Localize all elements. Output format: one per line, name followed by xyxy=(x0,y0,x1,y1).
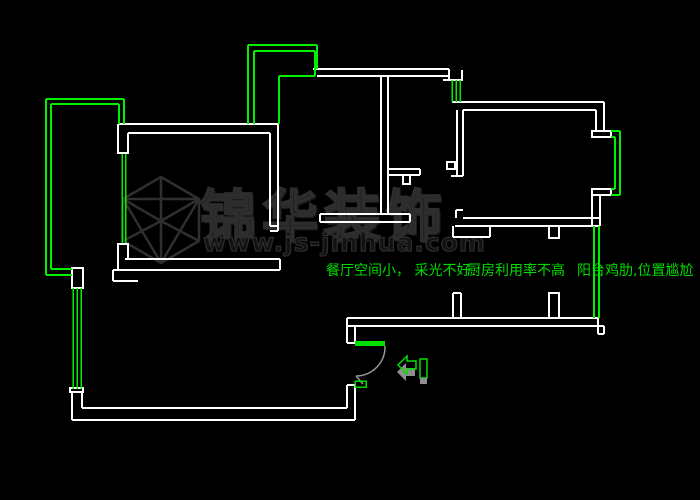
bedroom1-bottom-wall xyxy=(113,259,280,281)
livingroom-left-window xyxy=(73,288,81,389)
bedroom2-left-wall xyxy=(451,110,463,176)
bay-window-bottom-jamb xyxy=(592,189,611,195)
floor-plan-drawing xyxy=(0,0,700,500)
arrow-bar-shadow xyxy=(420,378,427,384)
entry-direction-arrow-icon xyxy=(397,356,427,384)
arrow-bar xyxy=(420,359,427,378)
top-window-triple xyxy=(452,80,460,102)
left-balcony-window xyxy=(46,99,124,275)
top-balcony-window xyxy=(248,45,317,124)
entry-wall-upper xyxy=(347,318,355,343)
dining-kitchen-divider-wall xyxy=(381,76,388,214)
walls-group xyxy=(70,69,611,420)
entry-wall-lower xyxy=(347,385,355,420)
bedroom1-left-wall-lower xyxy=(117,243,129,270)
annotation-dining: 餐厅空间小， 采光不好 xyxy=(326,263,470,279)
door-swing-arc xyxy=(356,346,385,384)
kitchen-balcony-door-jamb-top xyxy=(549,226,559,238)
bedroom2-top-wall xyxy=(452,102,604,131)
annotation-kitchen: 厨房利用率不高 xyxy=(467,263,565,279)
bedroom1-left-window xyxy=(122,154,126,243)
bedroom2-left-wall-corner xyxy=(456,210,463,218)
livingroom-bottom-wall xyxy=(72,391,355,420)
kitchen-left-wall-lower xyxy=(453,293,461,318)
bedroom1-door-jamb xyxy=(272,259,280,270)
entry-door-leaf xyxy=(355,341,385,346)
kitchen-top-ledge xyxy=(453,226,490,237)
thin-window-lines-group xyxy=(73,80,460,389)
entry-door-group xyxy=(355,341,385,387)
kitchen-door-jamb-stub xyxy=(403,175,410,184)
cad-floorplan-canvas: 锦华装饰 www.js-jinhua.com xyxy=(0,0,700,500)
bay-window-top-jamb xyxy=(592,131,611,137)
right-bay-window xyxy=(611,131,620,195)
bedroom1-right-wall xyxy=(270,124,278,231)
bedroom2-door-jamb-block xyxy=(447,162,455,169)
bedroom1-top-wall xyxy=(118,124,278,133)
annotation-balcony: 阳台鸡肋,位置尴尬 xyxy=(577,263,693,279)
livingroom-window-sill-upper xyxy=(72,268,83,288)
bedroom2-right-wall-lower xyxy=(592,195,600,226)
bedroom1-left-wall-upper xyxy=(117,124,129,154)
bedroom2-bottom-wall xyxy=(455,218,600,226)
dining-bottom-wall xyxy=(320,214,410,222)
kitchen-balcony-door-jamb-bottom xyxy=(549,293,559,318)
corridor-bottom-wall xyxy=(347,318,604,334)
